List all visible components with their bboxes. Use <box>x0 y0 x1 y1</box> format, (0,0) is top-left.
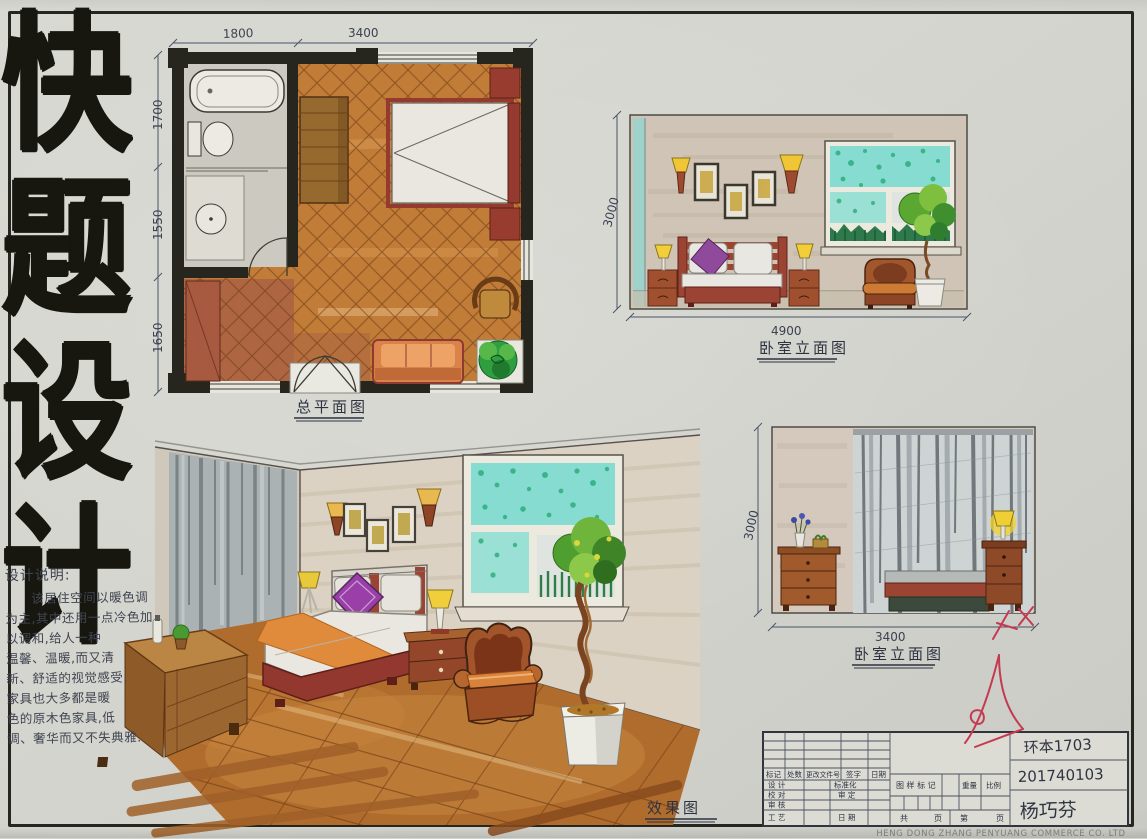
elevation-b-basket-plant <box>813 536 828 549</box>
design-notes-heading: 设计说明: <box>5 563 187 586</box>
elevation-b-dim-width: 3400 <box>875 630 906 644</box>
floor-plan-label: 总平面图 <box>296 398 368 416</box>
tb-student-name: 杨巧芬 <box>1019 799 1077 823</box>
plan-entry-cabinet <box>186 281 220 381</box>
tb-row-approve: 审 定 <box>838 790 856 800</box>
perspective-curtain <box>169 452 297 641</box>
plan-sofa <box>373 340 463 383</box>
plan-bed <box>388 100 520 206</box>
tb-row-review: 审 核 <box>768 800 786 810</box>
plan-dim-1800: 1800 <box>223 26 254 41</box>
floor-plan-drawing: 1800 3400 1700 1550 1650 <box>148 18 568 430</box>
plan-dim-1650: 1650 <box>151 322 165 353</box>
elevation-a-dim-height: 3000 <box>600 196 621 229</box>
plan-dim-1550: 1550 <box>151 209 165 240</box>
tb-sheet-label: 第 <box>960 813 968 823</box>
tb-col-date: 日期 <box>871 770 886 779</box>
tb-row-standard: 标准化 <box>834 780 857 790</box>
plan-plant <box>477 340 523 383</box>
tb-weight-label: 重量 <box>962 781 977 790</box>
tb-col-file: 更改文件号 <box>806 770 840 779</box>
tb-col-mark: 标记 <box>766 769 781 779</box>
tb-pages-label: 页 <box>934 814 942 823</box>
plan-bathroom <box>184 64 287 267</box>
tb-row-craft: 工 艺 <box>768 813 785 822</box>
plan-wardrobe <box>300 97 348 203</box>
tb-stamp-label: 图 样 标 记 <box>896 780 936 790</box>
plan-nightstand-top <box>490 68 520 98</box>
plan-toilet <box>188 122 201 156</box>
elevation-a-curtain-edge <box>633 118 645 306</box>
tb-col-count: 处数 <box>787 769 802 779</box>
design-notes-line: 新、舒适的视觉感受, <box>6 667 188 690</box>
grader-signature-mark <box>935 595 1055 740</box>
design-notes: 设计说明: 该居住空间以暖色调 为主,其中还用一点冷色加 以调和,给人一种 温馨… <box>5 563 190 750</box>
design-notes-line: 色的原木色家具,低 <box>7 707 189 730</box>
plan-dim-1700: 1700 <box>151 99 165 130</box>
elevation-b-label: 卧室立面图 <box>854 645 944 663</box>
tb-row-date: 日 期 <box>838 813 855 822</box>
tb-student-id: 201740103 <box>1018 765 1104 786</box>
tb-row-design: 设 计 <box>768 780 786 790</box>
elevation-a-label: 卧室立面图 <box>759 339 849 357</box>
design-notes-line: 以调和,给人一种 <box>6 627 188 650</box>
design-notes-line: 温馨、温暖,而又清 <box>6 647 188 670</box>
tb-pages2-label: 页 <box>996 814 1004 823</box>
plan-nightstand-bottom <box>490 208 520 240</box>
tb-scale-label: 比例 <box>986 780 1001 790</box>
tb-total-label: 共 <box>900 814 908 823</box>
tb-col-sign: 签字 <box>846 769 861 779</box>
perspective-drawing: 效果图 <box>125 425 725 827</box>
plan-dim-3400: 3400 <box>348 26 379 40</box>
elevation-a-dim-width: 4900 <box>771 324 802 338</box>
title-block: 标记 处数 更改文件号 签字 日期 设 计 标准化 校 对 审 定 审 核 工 … <box>758 726 1138 830</box>
elevation-a-drawing: 3000 4900 卧室立面图 <box>593 93 1008 368</box>
perspective-armchair <box>454 623 542 723</box>
design-notes-line: 为主,其中还用一点冷色加 <box>5 607 187 630</box>
design-notes-line: 家具也大多都是暖 <box>6 687 188 710</box>
design-notes-line: 调、奢华而又不失典雅. <box>7 727 189 750</box>
presentation-board: 快题设计 1800 3400 1700 1550 1650 <box>0 0 1147 838</box>
perspective-label: 效果图 <box>647 799 701 817</box>
design-notes-line: 该居住空间以暖色调 <box>5 587 187 610</box>
elevation-a-armchair <box>863 259 917 309</box>
tb-row-proof: 校 对 <box>768 790 786 800</box>
